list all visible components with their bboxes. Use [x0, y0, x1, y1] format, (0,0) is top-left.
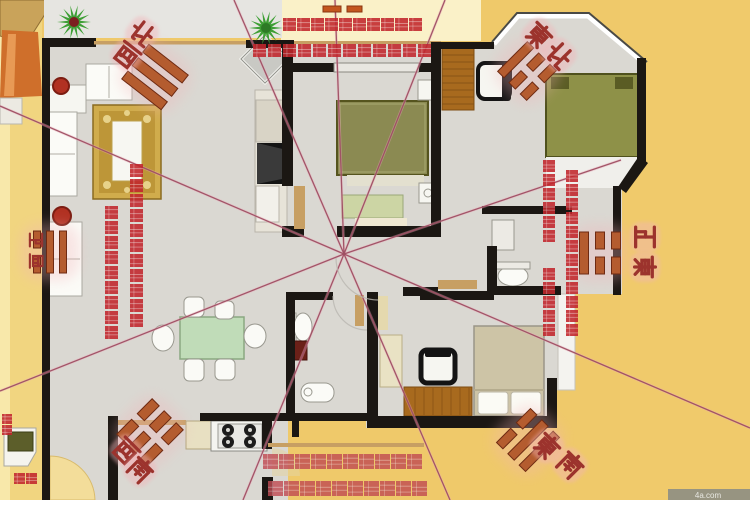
svg-text:4a.com: 4a.com	[695, 491, 722, 500]
